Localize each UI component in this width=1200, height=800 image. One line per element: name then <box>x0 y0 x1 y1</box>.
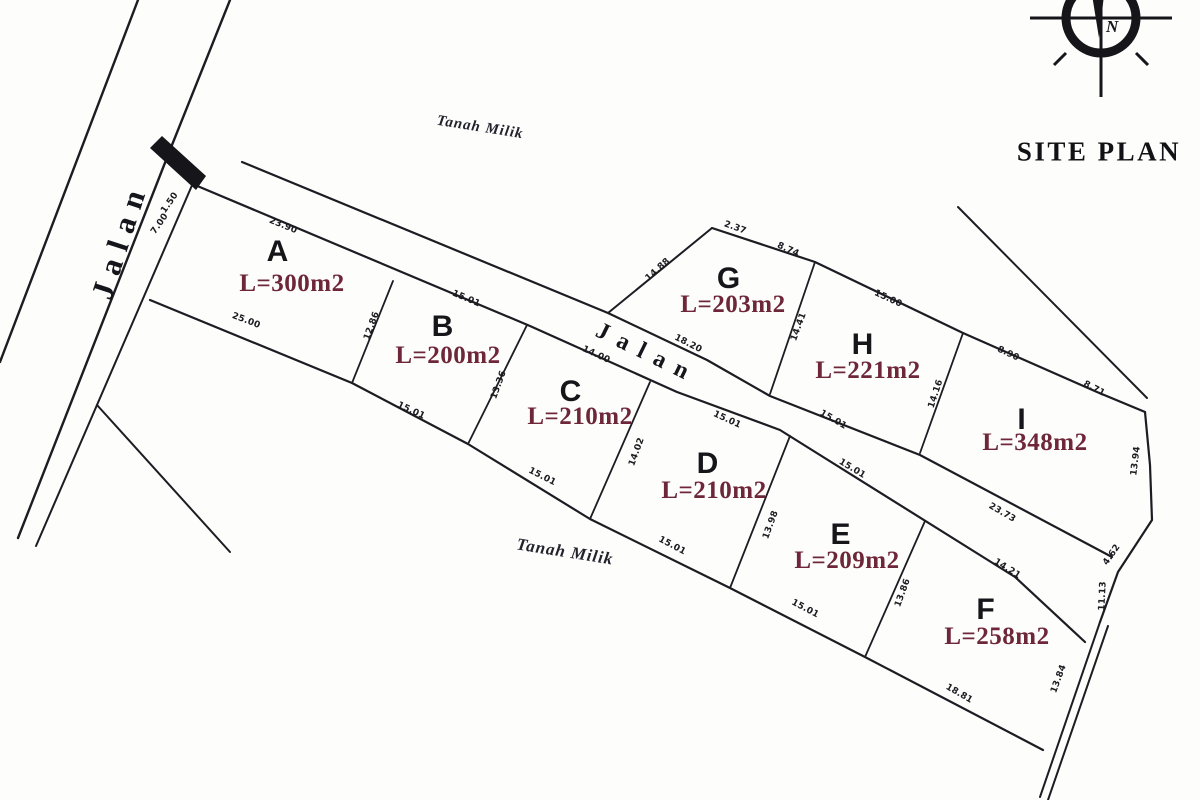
plot-A-area: L=300m2 <box>239 270 344 298</box>
plot-D-area: L=210m2 <box>661 477 766 505</box>
plot-I-area: L=348m2 <box>982 429 1087 457</box>
site-plan-canvas: N AL=300m2BL=200m2CL=210m2DL=210m2EL=209… <box>0 0 1200 800</box>
top-right-boundary-line <box>712 228 1145 412</box>
plot-C-area: L=210m2 <box>527 403 632 431</box>
road-south-edge-line <box>195 185 1085 642</box>
compass-icon: N <box>1030 0 1172 97</box>
plot-E-area: L=209m2 <box>794 547 899 575</box>
plan-drawing: N <box>0 0 1200 800</box>
plot-B-letter: B <box>432 310 455 344</box>
plot-H-area: L=221m2 <box>815 357 920 385</box>
plot-B-area: L=200m2 <box>395 342 500 370</box>
dimension-i-right-3: 11.13 <box>1097 581 1109 611</box>
plot-F-letter: F <box>976 593 995 627</box>
plot-G-area: L=203m2 <box>680 291 785 319</box>
left-road-west-edge-line <box>0 0 138 362</box>
plot-F-area: L=258m2 <box>944 623 1049 651</box>
page-title: SITE PLAN <box>1017 137 1181 168</box>
spur-line-line <box>97 405 230 552</box>
outer-northeast-line-line <box>958 207 1147 398</box>
compass-north-letter: N <box>1105 17 1119 36</box>
plot-A-letter: A <box>267 235 290 269</box>
right-lower-boundary-b-line <box>1048 626 1108 800</box>
divider-ef-line <box>865 521 925 657</box>
plot-D-letter: D <box>697 447 720 481</box>
